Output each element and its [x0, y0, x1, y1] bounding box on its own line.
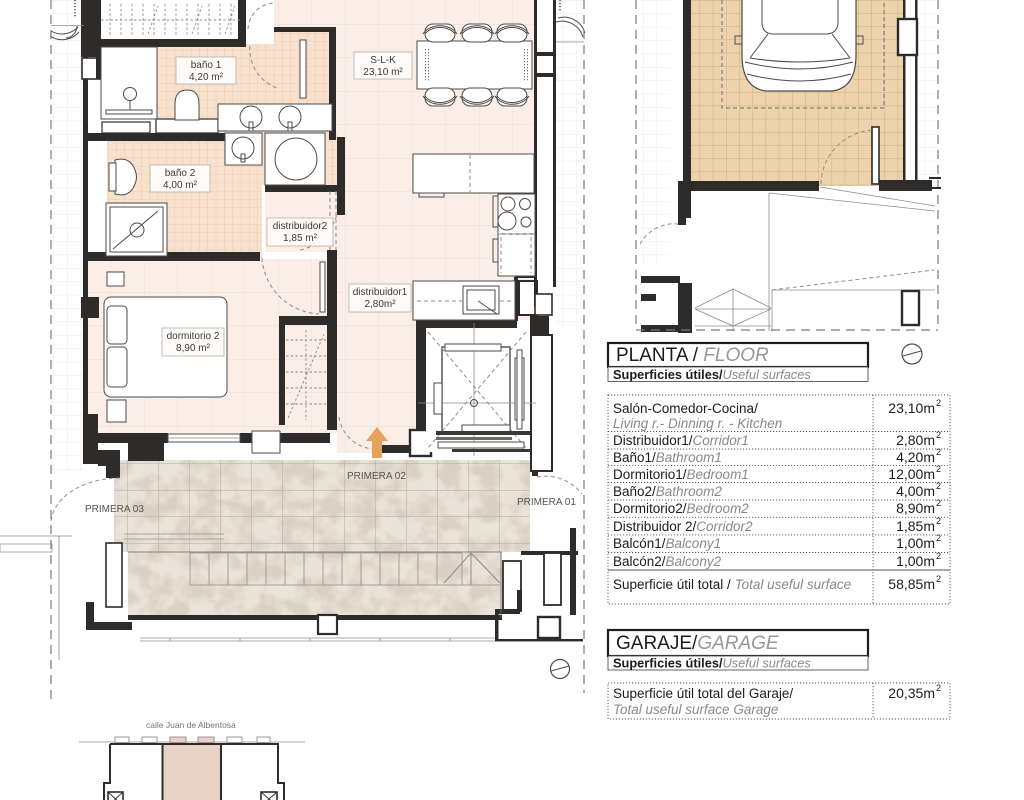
svg-text:1,00m: 1,00m	[896, 553, 935, 569]
svg-text:2: 2	[936, 464, 941, 474]
svg-text:4,00 m²: 4,00 m²	[163, 180, 198, 191]
svg-text:4,20 m²: 4,20 m²	[189, 72, 224, 83]
svg-text:PLANTA / FLOOR: PLANTA / FLOOR	[616, 345, 769, 366]
svg-text:Total useful surface Garage: Total useful surface Garage	[613, 702, 778, 717]
svg-text:Dormitorio1/Bedroom1: Dormitorio1/Bedroom1	[613, 467, 749, 482]
svg-text:23,10m: 23,10m	[888, 400, 935, 416]
svg-text:Dormitorio2/Bedroom2: Dormitorio2/Bedroom2	[613, 501, 749, 516]
svg-text:Distribuidor1/Corridor1: Distribuidor1/Corridor1	[613, 433, 749, 448]
svg-text:distribuidor2: distribuidor2	[273, 221, 328, 232]
svg-text:4,00m: 4,00m	[896, 483, 935, 499]
svg-text:58,85m: 58,85m	[888, 576, 935, 592]
svg-text:20,35m: 20,35m	[888, 685, 935, 701]
svg-text:Superficie útil total / Total: Superficie útil total / Total useful sur…	[613, 577, 851, 592]
svg-text:distribuidor1: distribuidor1	[353, 287, 408, 298]
svg-text:2: 2	[936, 481, 941, 491]
svg-text:2: 2	[936, 430, 941, 440]
svg-text:8,90 m²: 8,90 m²	[176, 343, 211, 354]
svg-text:2: 2	[936, 447, 941, 457]
svg-text:Distribuidor 2/Corridor2: Distribuidor 2/Corridor2	[613, 519, 753, 534]
svg-text:S-L-K: S-L-K	[370, 55, 396, 66]
svg-text:PRIMERA 02: PRIMERA 02	[347, 471, 406, 482]
svg-text:1,00m: 1,00m	[896, 535, 935, 551]
svg-text:Balcón2/Balcony2: Balcón2/Balcony2	[613, 554, 722, 569]
svg-text:2: 2	[936, 516, 941, 526]
svg-text:Living r.- Dinning r. - Kitche: Living r.- Dinning r. - Kitchen	[613, 416, 782, 431]
svg-text:2: 2	[936, 533, 941, 543]
svg-text:23,10 m²: 23,10 m²	[363, 67, 403, 78]
svg-text:Salón-Comedor-Cocina/: Salón-Comedor-Cocina/	[613, 401, 758, 416]
svg-text:Balcón1/Balcony1: Balcón1/Balcony1	[613, 536, 721, 551]
svg-text:calle Juan de Albentosa: calle Juan de Albentosa	[146, 720, 236, 730]
svg-text:2: 2	[936, 398, 941, 408]
svg-text:Superficies útiles/Useful surf: Superficies útiles/Useful surfaces	[613, 367, 811, 382]
svg-text:2: 2	[936, 498, 941, 508]
svg-text:PRIMERA 03: PRIMERA 03	[85, 504, 144, 515]
svg-text:2: 2	[936, 683, 941, 693]
svg-text:Superficies útiles/Useful surf: Superficies útiles/Useful surfaces	[613, 656, 811, 671]
svg-text:GARAJE/GARAGE: GARAJE/GARAGE	[616, 633, 779, 654]
svg-text:Superficie útil total del Gara: Superficie útil total del Garaje/	[613, 686, 793, 701]
svg-text:dormitorio 2: dormitorio 2	[167, 331, 220, 342]
svg-text:12,00m: 12,00m	[888, 466, 935, 482]
svg-text:Baño2/Bathroom2: Baño2/Bathroom2	[613, 484, 722, 499]
svg-text:8,90m: 8,90m	[896, 500, 935, 516]
svg-text:PRIMERA 01: PRIMERA 01	[517, 497, 576, 508]
svg-text:baño 2: baño 2	[165, 168, 196, 179]
svg-text:1,85m: 1,85m	[896, 518, 935, 534]
svg-text:2,80m²: 2,80m²	[364, 299, 396, 310]
svg-text:1,85 m²: 1,85 m²	[283, 233, 318, 244]
svg-text:Baño1/Bathroom1: Baño1/Bathroom1	[613, 450, 722, 465]
svg-text:baño 1: baño 1	[191, 60, 222, 71]
svg-text:4,20m: 4,20m	[896, 449, 935, 465]
svg-text:2: 2	[936, 551, 941, 561]
svg-text:2: 2	[936, 574, 941, 584]
svg-text:2,80m: 2,80m	[896, 432, 935, 448]
